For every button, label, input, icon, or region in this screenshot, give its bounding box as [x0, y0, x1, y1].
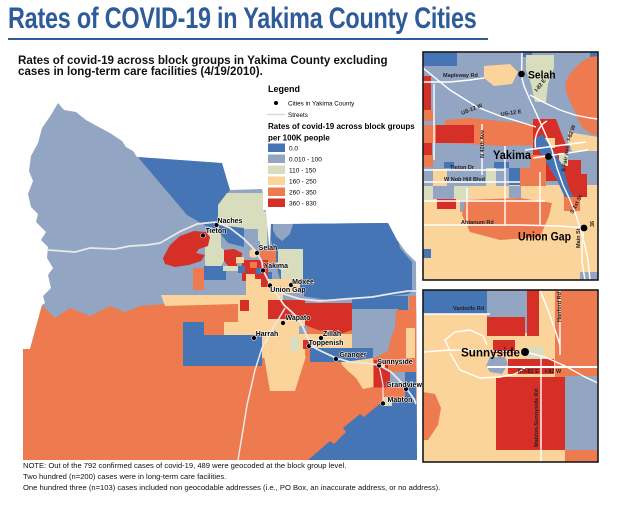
svg-text:Rates of covid-19 across block: Rates of covid-19 across block groups	[268, 122, 415, 131]
svg-text:Hanford Rd: Hanford Rd	[557, 292, 563, 322]
svg-text:Mabton-Sunnyside Rd: Mabton-Sunnyside Rd	[534, 389, 540, 447]
svg-text:Moxee: Moxee	[292, 279, 314, 286]
svg-text:Sunnyside: Sunnyside	[377, 359, 413, 366]
svg-text:0.010 - 100: 0.010 - 100	[289, 157, 322, 164]
svg-text:0.0: 0.0	[289, 146, 298, 153]
svg-text:Yakima: Yakima	[264, 263, 288, 270]
svg-text:Main St: Main St	[576, 228, 582, 248]
svg-text:Selah: Selah	[528, 70, 556, 82]
svg-text:W Nob Hill Blvd: W Nob Hill Blvd	[444, 177, 485, 183]
svg-text:36: 36	[590, 221, 596, 227]
svg-text:per 100K people: per 100K people	[268, 134, 330, 143]
svg-text:Legend: Legend	[268, 84, 300, 94]
svg-text:Vanbelle Rd: Vanbelle Rd	[453, 306, 484, 312]
svg-text:N 40th Ave: N 40th Ave	[480, 130, 486, 158]
svg-text:360 - 830: 360 - 830	[289, 201, 317, 208]
svg-text:Streets: Streets	[288, 112, 308, 119]
svg-text:160 - 250: 160 - 250	[289, 179, 317, 186]
svg-text:Mapleway Rd: Mapleway Rd	[443, 73, 478, 79]
svg-text:Union Gap: Union Gap	[270, 287, 305, 294]
svg-text:Grandview: Grandview	[386, 382, 422, 389]
svg-text:I-82 W: I-82 W	[545, 369, 562, 375]
svg-text:Tieton Dr: Tieton Dr	[450, 165, 475, 171]
svg-text:Ahtanum Rd: Ahtanum Rd	[461, 220, 494, 226]
svg-text:Granger: Granger	[339, 352, 367, 359]
svg-text:Sunnyside: Sunnyside	[461, 346, 520, 360]
svg-text:110 - 150: 110 - 150	[289, 168, 316, 175]
svg-text:Harrah: Harrah	[256, 331, 279, 338]
svg-text:Zillah: Zillah	[323, 331, 341, 338]
svg-text:Mabton: Mabton	[388, 397, 413, 404]
svg-text:260 - 350: 260 - 350	[289, 190, 317, 197]
svg-text:Cities in Yakima County: Cities in Yakima County	[288, 101, 355, 108]
svg-text:Yakima: Yakima	[493, 148, 531, 162]
svg-text:67I-82 E: 67I-82 E	[518, 369, 539, 375]
svg-text:Toppenish: Toppenish	[309, 340, 344, 347]
svg-text:Wapato: Wapato	[285, 315, 310, 322]
svg-text:Tieton: Tieton	[206, 228, 227, 235]
svg-text:Selah: Selah	[259, 245, 278, 252]
svg-text:Naches: Naches	[218, 218, 243, 225]
svg-text:Union Gap: Union Gap	[518, 230, 571, 244]
